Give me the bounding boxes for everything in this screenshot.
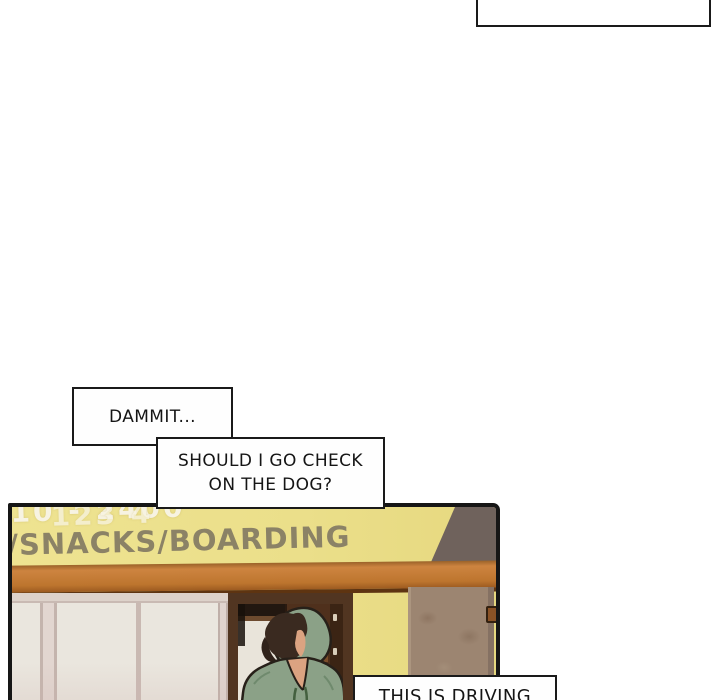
wall-peg	[486, 606, 498, 623]
display-windows	[12, 593, 228, 700]
speech-text: THIS IS DRIVING	[379, 685, 531, 700]
window-shading	[12, 603, 228, 700]
hoodie-person	[240, 604, 346, 700]
empty-caption-box	[476, 0, 711, 27]
speech-bubble-check-dog: SHOULD I GO CHECK ON THE DOG?	[156, 437, 385, 509]
speech-bubble-driving: THIS IS DRIVING	[353, 675, 557, 700]
comic-page: DAMMIT... SHOULD I GO CHECK ON THE DOG? …	[0, 0, 720, 700]
storefront-sign-services: /SNACKS/BOARDING	[8, 520, 351, 562]
comic-panel: 10 - 2400123 4 /SNACKS/BOARDING	[8, 503, 500, 700]
window-top-frame	[12, 593, 228, 603]
speech-text-line1: SHOULD I GO CHECK	[178, 449, 363, 473]
speech-text: DAMMIT...	[109, 405, 196, 429]
speech-text-line2: ON THE DOG?	[209, 473, 333, 497]
doorway	[228, 593, 353, 700]
